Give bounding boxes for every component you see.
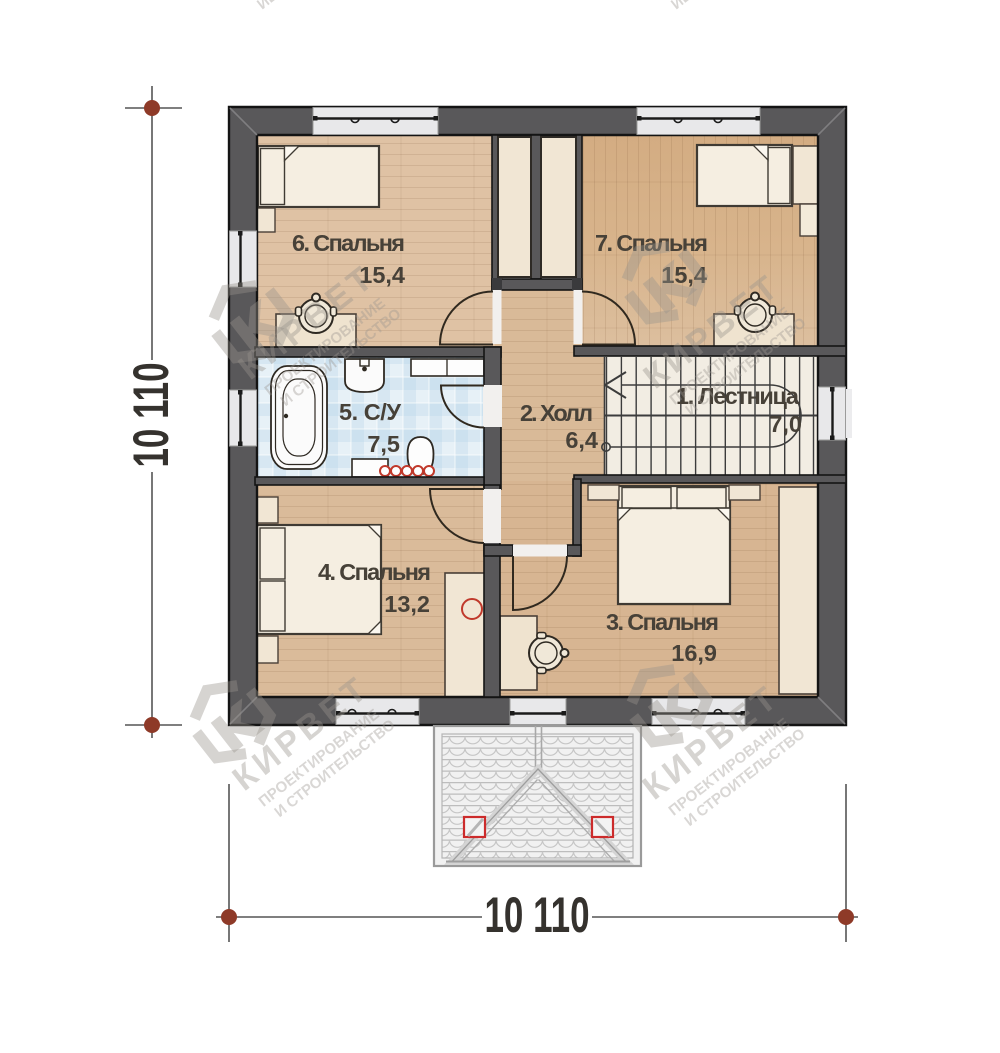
svg-text:10 110: 10 110 [124, 362, 180, 467]
svg-text:5. С/У: 5. С/У [339, 399, 401, 425]
svg-text:10 110: 10 110 [484, 888, 589, 944]
svg-text:7,5: 7,5 [367, 431, 400, 457]
svg-text:2. Холл: 2. Холл [520, 400, 593, 426]
svg-text:6,4: 6,4 [565, 427, 598, 453]
svg-text:13,2: 13,2 [384, 591, 430, 617]
svg-text:4. Спальня: 4. Спальня [318, 559, 431, 585]
svg-text:7,0: 7,0 [769, 411, 802, 437]
svg-text:3. Спальня: 3. Спальня [606, 609, 719, 635]
svg-text:16,9: 16,9 [671, 640, 717, 666]
svg-text:6. Спальня: 6. Спальня [292, 230, 405, 256]
